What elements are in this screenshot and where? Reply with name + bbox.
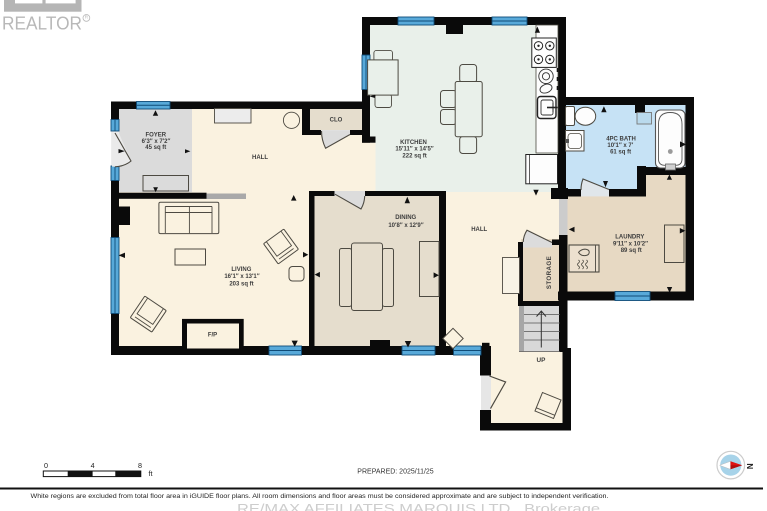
svg-text:REALTOR: REALTOR	[2, 13, 82, 34]
svg-text:61 sq ft: 61 sq ft	[610, 149, 631, 155]
svg-text:HALL: HALL	[471, 227, 487, 233]
svg-text:10′1″ x 7′: 10′1″ x 7′	[607, 143, 633, 149]
svg-text:F/P: F/P	[208, 332, 217, 338]
svg-text:STORAGE: STORAGE	[546, 256, 553, 289]
svg-text:RE/MAX AFFILIATES MARQUIS LTD.: RE/MAX AFFILIATES MARQUIS LTD., Brokerag…	[237, 501, 600, 511]
svg-text:White regions are excluded fro: White regions are excluded from total fl…	[31, 493, 609, 500]
svg-text:HALL: HALL	[252, 155, 268, 161]
svg-text:16′1″ x 13′1″: 16′1″ x 13′1″	[224, 274, 259, 280]
svg-text:222 sq ft: 222 sq ft	[402, 153, 426, 159]
svg-text:4PC BATH: 4PC BATH	[606, 136, 636, 142]
svg-text:KITCHEN: KITCHEN	[400, 140, 427, 146]
svg-text:FOYER: FOYER	[145, 133, 166, 139]
svg-text:PREPARED: 2025/11/25: PREPARED: 2025/11/25	[357, 469, 434, 476]
svg-text:0: 0	[44, 461, 48, 470]
svg-text:N: N	[745, 463, 754, 469]
svg-text:4: 4	[91, 461, 95, 470]
svg-text:89 sq ft: 89 sq ft	[621, 248, 642, 254]
svg-text:9′11″ x 10′2″: 9′11″ x 10′2″	[613, 242, 648, 248]
svg-text:UP: UP	[537, 357, 547, 364]
svg-text:15′11″ x 14′5″: 15′11″ x 14′5″	[395, 147, 433, 153]
svg-text:45 sq ft: 45 sq ft	[145, 145, 166, 151]
svg-text:LAUNDRY: LAUNDRY	[615, 235, 644, 241]
svg-text:8: 8	[138, 461, 142, 470]
svg-text:R: R	[85, 15, 89, 21]
svg-text:DINING: DINING	[395, 215, 416, 221]
svg-text:10′8″ x 12′9″: 10′8″ x 12′9″	[388, 223, 423, 229]
svg-text:ft: ft	[149, 469, 153, 478]
svg-text:LIVING: LIVING	[231, 267, 251, 273]
svg-text:CLO: CLO	[330, 118, 343, 124]
svg-text:6′3″ x 7′2″: 6′3″ x 7′2″	[142, 139, 171, 145]
svg-text:203 sq ft: 203 sq ft	[229, 282, 253, 288]
